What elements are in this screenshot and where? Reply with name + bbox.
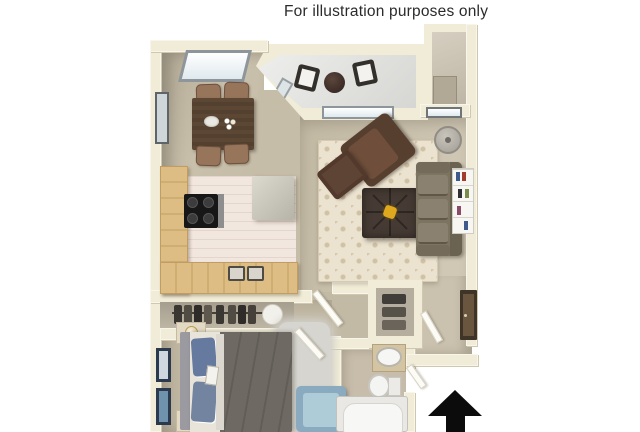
linen-closet-interior — [376, 288, 414, 336]
refrigerator — [252, 176, 294, 220]
comforter — [224, 332, 292, 432]
wall-art — [156, 388, 171, 425]
dining-chair — [224, 144, 250, 165]
storage-closet-door — [433, 76, 457, 105]
toilet — [368, 374, 390, 398]
bookshelf — [452, 168, 474, 234]
patio-table — [324, 72, 345, 93]
hallway-bottom-wall — [406, 354, 478, 366]
north-arrow-icon — [428, 390, 482, 416]
bathroom-door — [406, 364, 427, 389]
dining-side-window — [155, 92, 169, 144]
bathroom-sink — [376, 347, 402, 367]
coffee-table — [362, 188, 418, 238]
stove — [184, 194, 218, 228]
toilet-tank — [388, 377, 401, 396]
patio-chair — [352, 59, 379, 87]
hamper — [262, 304, 283, 325]
floor-plan-image: For illustration purposes only — [0, 0, 640, 432]
stove-panel — [218, 194, 224, 228]
wall-art — [156, 348, 171, 382]
dining-chair — [196, 146, 222, 167]
kitchen-sink — [228, 266, 266, 283]
dining-window — [178, 50, 252, 82]
bathtub — [336, 396, 408, 432]
table-decor — [224, 118, 236, 130]
floor-lamp — [434, 126, 462, 154]
corridor-wall-right — [332, 282, 372, 294]
pillow — [191, 381, 218, 423]
disclaimer-caption: For illustration purposes only — [284, 3, 488, 21]
north-arrow-stem — [446, 416, 465, 432]
living-room-window-2 — [426, 107, 462, 118]
entry-door — [460, 290, 477, 340]
table-plate — [204, 116, 219, 127]
dining-table — [192, 98, 254, 150]
